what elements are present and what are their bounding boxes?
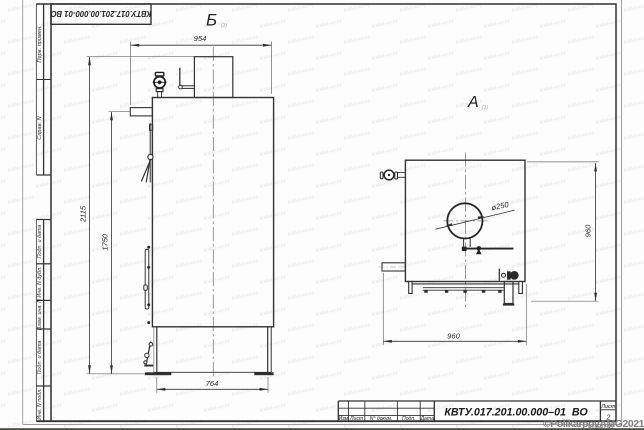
svg-text:kotlad-ws.kz: kotlad-ws.kz <box>119 194 147 206</box>
svg-text:kotlad-ws.kz: kotlad-ws.kz <box>231 418 259 430</box>
svg-text:kotlad-ws.kz: kotlad-ws.kz <box>455 418 483 430</box>
svg-text:kotlad-ws.kz: kotlad-ws.kz <box>455 354 483 366</box>
svg-text:kotlad-ws.kz: kotlad-ws.kz <box>483 114 511 126</box>
svg-text:kotlad-ws.kz: kotlad-ws.kz <box>539 50 567 62</box>
svg-text:kotlad-ws.kz: kotlad-ws.kz <box>7 418 35 430</box>
svg-text:kotlad-ws.kz: kotlad-ws.kz <box>427 82 455 94</box>
svg-text:kotlad-ws.kz: kotlad-ws.kz <box>63 258 91 270</box>
svg-text:kotlad-ws.kz: kotlad-ws.kz <box>595 82 623 94</box>
svg-text:kotlad-ws.kz: kotlad-ws.kz <box>595 50 623 62</box>
svg-text:kotlad-ws.kz: kotlad-ws.kz <box>63 418 91 430</box>
svg-text:kotlad-ws.kz: kotlad-ws.kz <box>147 242 175 254</box>
svg-text:kotlad-ws.kz: kotlad-ws.kz <box>623 34 644 46</box>
svg-text:kotlad-ws.kz: kotlad-ws.kz <box>539 114 567 126</box>
svg-text:N° докум.: N° докум. <box>370 416 393 422</box>
svg-text:kotlad-ws.kz: kotlad-ws.kz <box>343 98 371 110</box>
svg-text:kotlad-ws.kz: kotlad-ws.kz <box>0 146 7 158</box>
svg-text:kotlad-ws.kz: kotlad-ws.kz <box>7 226 35 238</box>
svg-text:kotlad-ws.kz: kotlad-ws.kz <box>231 226 259 238</box>
svg-text:kotlad-ws.kz: kotlad-ws.kz <box>7 354 35 366</box>
svg-text:kotlad-ws.kz: kotlad-ws.kz <box>371 274 399 286</box>
svg-text:kotlad-ws.kz: kotlad-ws.kz <box>315 370 343 382</box>
svg-text:kotlad-ws.kz: kotlad-ws.kz <box>147 370 175 382</box>
svg-text:Изм: Изм <box>339 416 349 422</box>
svg-text:kotlad-ws.kz: kotlad-ws.kz <box>511 354 539 366</box>
svg-text:Лист: Лист <box>349 416 363 422</box>
svg-text:kotlad-ws.kz: kotlad-ws.kz <box>0 82 7 94</box>
svg-text:kotlad-ws.kz: kotlad-ws.kz <box>623 290 644 302</box>
svg-text:kotlad-ws.kz: kotlad-ws.kz <box>539 82 567 94</box>
svg-text:kotlad-ws.kz: kotlad-ws.kz <box>343 226 371 238</box>
svg-text:kotlad-ws.kz: kotlad-ws.kz <box>7 130 35 142</box>
svg-text:kotlad-ws.kz: kotlad-ws.kz <box>119 386 147 398</box>
svg-text:kotlad-ws.kz: kotlad-ws.kz <box>455 258 483 270</box>
svg-text:kotlad-ws.kz: kotlad-ws.kz <box>91 114 119 126</box>
svg-text:kotlad-ws.kz: kotlad-ws.kz <box>63 290 91 302</box>
svg-text:kotlad-ws.kz: kotlad-ws.kz <box>259 50 287 62</box>
svg-text:kotlad-ws.kz: kotlad-ws.kz <box>287 354 315 366</box>
svg-text:kotlad-ws.kz: kotlad-ws.kz <box>0 210 7 222</box>
svg-text:kotlad-ws.kz: kotlad-ws.kz <box>427 18 455 30</box>
svg-text:kotlad-ws.kz: kotlad-ws.kz <box>623 162 644 174</box>
svg-text:kotlad-ws.kz: kotlad-ws.kz <box>595 370 623 382</box>
svg-text:kotlad-ws.kz: kotlad-ws.kz <box>175 226 203 238</box>
svg-text:kotlad-ws.kz: kotlad-ws.kz <box>231 66 259 78</box>
svg-text:kotlad-ws.kz: kotlad-ws.kz <box>371 50 399 62</box>
svg-text:kotlad-ws.kz: kotlad-ws.kz <box>175 130 203 142</box>
svg-text:kotlad-ws.kz: kotlad-ws.kz <box>231 98 259 110</box>
svg-text:kotlad-ws.kz: kotlad-ws.kz <box>91 274 119 286</box>
svg-text:kotlad-ws.kz: kotlad-ws.kz <box>539 370 567 382</box>
svg-text:kotlad-ws.kz: kotlad-ws.kz <box>399 162 427 174</box>
svg-text:kotlad-ws.kz: kotlad-ws.kz <box>287 162 315 174</box>
svg-text:kotlad-ws.kz: kotlad-ws.kz <box>623 98 644 110</box>
svg-text:kotlad-ws.kz: kotlad-ws.kz <box>371 370 399 382</box>
svg-text:kotlad-ws.kz: kotlad-ws.kz <box>595 18 623 30</box>
svg-text:kotlad-ws.kz: kotlad-ws.kz <box>259 82 287 94</box>
svg-text:kotlad-ws.kz: kotlad-ws.kz <box>539 306 567 318</box>
svg-text:kotlad-ws.kz: kotlad-ws.kz <box>399 386 427 398</box>
svg-text:kotlad-ws.kz: kotlad-ws.kz <box>371 210 399 222</box>
svg-text:kotlad-ws.kz: kotlad-ws.kz <box>231 34 259 46</box>
svg-text:kotlad-ws.kz: kotlad-ws.kz <box>119 322 147 334</box>
svg-text:kotlad-ws.kz: kotlad-ws.kz <box>371 82 399 94</box>
svg-text:kotlad-ws.kz: kotlad-ws.kz <box>455 386 483 398</box>
svg-text:kotlad-ws.kz: kotlad-ws.kz <box>203 306 231 318</box>
svg-text:kotlad-ws.kz: kotlad-ws.kz <box>0 178 7 190</box>
svg-text:Справ. N: Справ. N <box>37 115 43 139</box>
svg-text:1750: 1750 <box>100 233 109 251</box>
svg-text:kotlad-ws.kz: kotlad-ws.kz <box>0 50 7 62</box>
svg-text:kotlad-ws.kz: kotlad-ws.kz <box>539 18 567 30</box>
svg-text:Дата: Дата <box>419 416 434 422</box>
svg-text:kotlad-ws.kz: kotlad-ws.kz <box>371 178 399 190</box>
svg-text:kotlad-ws.kz: kotlad-ws.kz <box>343 354 371 366</box>
svg-text:764: 764 <box>206 379 219 388</box>
svg-text:kotlad-ws.kz: kotlad-ws.kz <box>483 338 511 350</box>
svg-text:kotlad-ws.kz: kotlad-ws.kz <box>343 258 371 270</box>
svg-text:kotlad-ws.kz: kotlad-ws.kz <box>539 338 567 350</box>
svg-text:kotlad-ws.kz: kotlad-ws.kz <box>567 162 595 174</box>
svg-text:kotlad-ws.kz: kotlad-ws.kz <box>259 370 287 382</box>
svg-text:kotlad-ws.kz: kotlad-ws.kz <box>427 146 455 158</box>
svg-text:kotlad-ws.kz: kotlad-ws.kz <box>427 306 455 318</box>
svg-text:kotlad-ws.kz: kotlad-ws.kz <box>511 66 539 78</box>
svg-text:kotlad-ws.kz: kotlad-ws.kz <box>0 18 7 30</box>
svg-text:Взам. инв. N: Взам. инв. N <box>37 299 43 331</box>
svg-text:kotlad-ws.kz: kotlad-ws.kz <box>539 242 567 254</box>
svg-text:kotlad-ws.kz: kotlad-ws.kz <box>315 50 343 62</box>
svg-text:kotlad-ws.kz: kotlad-ws.kz <box>0 274 7 286</box>
svg-text:kotlad-ws.kz: kotlad-ws.kz <box>63 322 91 334</box>
svg-text:kotlad-ws.kz: kotlad-ws.kz <box>203 242 231 254</box>
svg-text:kotlad-ws.kz: kotlad-ws.kz <box>567 194 595 206</box>
svg-text:kotlad-ws.kz: kotlad-ws.kz <box>623 194 644 206</box>
svg-text:kotlad-ws.kz: kotlad-ws.kz <box>399 194 427 206</box>
svg-text:kotlad-ws.kz: kotlad-ws.kz <box>7 322 35 334</box>
svg-text:kotlad-ws.kz: kotlad-ws.kz <box>567 354 595 366</box>
svg-text:kotlad-ws.kz: kotlad-ws.kz <box>371 146 399 158</box>
svg-text:kotlad-ws.kz: kotlad-ws.kz <box>147 50 175 62</box>
svg-text:kotlad-ws.kz: kotlad-ws.kz <box>203 402 231 414</box>
svg-text:kotlad-ws.kz: kotlad-ws.kz <box>623 66 644 78</box>
svg-text:kotlad-ws.kz: kotlad-ws.kz <box>399 290 427 302</box>
svg-text:kotlad-ws.kz: kotlad-ws.kz <box>231 322 259 334</box>
svg-text:954: 954 <box>194 34 207 43</box>
svg-text:kotlad-ws.kz: kotlad-ws.kz <box>595 114 623 126</box>
svg-text:kotlad-ws.kz: kotlad-ws.kz <box>567 34 595 46</box>
svg-text:kotlad-ws.kz: kotlad-ws.kz <box>315 82 343 94</box>
svg-text:kotlad-ws.kz: kotlad-ws.kz <box>371 18 399 30</box>
svg-text:kotlad-ws.kz: kotlad-ws.kz <box>455 290 483 302</box>
svg-text:kotlad-ws.kz: kotlad-ws.kz <box>231 194 259 206</box>
svg-text:kotlad-ws.kz: kotlad-ws.kz <box>287 258 315 270</box>
svg-text:kotlad-ws.kz: kotlad-ws.kz <box>91 402 119 414</box>
svg-text:kotlad-ws.kz: kotlad-ws.kz <box>63 98 91 110</box>
svg-text:kotlad-ws.kz: kotlad-ws.kz <box>623 386 644 398</box>
svg-text:kotlad-ws.kz: kotlad-ws.kz <box>63 66 91 78</box>
svg-text:kotlad-ws.kz: kotlad-ws.kz <box>427 178 455 190</box>
svg-text:kotlad-ws.kz: kotlad-ws.kz <box>455 66 483 78</box>
svg-text:kotlad-ws.kz: kotlad-ws.kz <box>287 130 315 142</box>
svg-text:kotlad-ws.kz: kotlad-ws.kz <box>231 290 259 302</box>
svg-text:kotlad-ws.kz: kotlad-ws.kz <box>91 210 119 222</box>
svg-text:kotlad-ws.kz: kotlad-ws.kz <box>175 418 203 430</box>
svg-text:kotlad-ws.kz: kotlad-ws.kz <box>567 258 595 270</box>
svg-text:kotlad-ws.kz: kotlad-ws.kz <box>259 402 287 414</box>
svg-text:kotlad-ws.kz: kotlad-ws.kz <box>175 258 203 270</box>
svg-text:kotlad-ws.kz: kotlad-ws.kz <box>399 258 427 270</box>
svg-text:kotlad-ws.kz: kotlad-ws.kz <box>371 306 399 318</box>
svg-text:kotlad-ws.kz: kotlad-ws.kz <box>315 114 343 126</box>
svg-text:kotlad-ws.kz: kotlad-ws.kz <box>63 34 91 46</box>
svg-text:А: А <box>467 94 479 111</box>
svg-text:kotlad-ws.kz: kotlad-ws.kz <box>147 402 175 414</box>
svg-text:kotlad-ws.kz: kotlad-ws.kz <box>119 66 147 78</box>
svg-text:kotlad-ws.kz: kotlad-ws.kz <box>343 34 371 46</box>
svg-text:kotlad-ws.kz: kotlad-ws.kz <box>399 226 427 238</box>
svg-text:kotlad-ws.kz: kotlad-ws.kz <box>0 370 7 382</box>
svg-text:kotlad-ws.kz: kotlad-ws.kz <box>287 290 315 302</box>
svg-text:kotlad-ws.kz: kotlad-ws.kz <box>35 210 63 222</box>
svg-text:Подп. и дата: Подп. и дата <box>37 341 43 375</box>
svg-text:kotlad-ws.kz: kotlad-ws.kz <box>315 18 343 30</box>
svg-text:kotlad-ws.kz: kotlad-ws.kz <box>483 50 511 62</box>
svg-text:kotlad-ws.kz: kotlad-ws.kz <box>0 338 7 350</box>
svg-text:kotlad-ws.kz: kotlad-ws.kz <box>483 370 511 382</box>
svg-text:kotlad-ws.kz: kotlad-ws.kz <box>119 130 147 142</box>
svg-text:kotlad-ws.kz: kotlad-ws.kz <box>343 290 371 302</box>
svg-text:kotlad-ws.kz: kotlad-ws.kz <box>91 82 119 94</box>
svg-text:kotlad-ws.kz: kotlad-ws.kz <box>231 354 259 366</box>
svg-text:kotlad-ws.kz: kotlad-ws.kz <box>511 322 539 334</box>
svg-text:kotlad-ws.kz: kotlad-ws.kz <box>623 130 644 142</box>
svg-text:kotlad-ws.kz: kotlad-ws.kz <box>315 210 343 222</box>
svg-text:Перв. примен.: Перв. примен. <box>37 25 43 62</box>
svg-text:kotlad-ws.kz: kotlad-ws.kz <box>595 210 623 222</box>
svg-text:kotlad-ws.kz: kotlad-ws.kz <box>175 322 203 334</box>
svg-text:kotlad-ws.kz: kotlad-ws.kz <box>287 34 315 46</box>
svg-text:kotlad-ws.kz: kotlad-ws.kz <box>455 130 483 142</box>
svg-text:kotlad-ws.kz: kotlad-ws.kz <box>231 162 259 174</box>
svg-text:960: 960 <box>583 224 592 237</box>
svg-text:kotlad-ws.kz: kotlad-ws.kz <box>343 130 371 142</box>
svg-text:kotlad-ws.kz: kotlad-ws.kz <box>0 306 7 318</box>
svg-text:kotlad-ws.kz: kotlad-ws.kz <box>595 306 623 318</box>
svg-text:kotlad-ws.kz: kotlad-ws.kz <box>63 162 91 174</box>
svg-text:kotlad-ws.kz: kotlad-ws.kz <box>259 18 287 30</box>
svg-text:kotlad-ws.kz: kotlad-ws.kz <box>539 178 567 190</box>
svg-text:kotlad-ws.kz: kotlad-ws.kz <box>7 162 35 174</box>
svg-text:kotlad-ws.kz: kotlad-ws.kz <box>287 194 315 206</box>
svg-text:Инв. N подл.: Инв. N подл. <box>37 388 43 420</box>
svg-text:kotlad-ws.kz: kotlad-ws.kz <box>399 354 427 366</box>
svg-text:kotlad-ws.kz: kotlad-ws.kz <box>203 146 231 158</box>
svg-text:kotlad-ws.kz: kotlad-ws.kz <box>231 386 259 398</box>
svg-text:Подп.: Подп. <box>402 416 416 422</box>
svg-text:kotlad-ws.kz: kotlad-ws.kz <box>623 226 644 238</box>
svg-text:ø250: ø250 <box>491 200 511 213</box>
svg-text:kotlad-ws.kz: kotlad-ws.kz <box>371 338 399 350</box>
svg-text:kotlad-ws.kz: kotlad-ws.kz <box>567 66 595 78</box>
svg-text:kotlad-ws.kz: kotlad-ws.kz <box>119 418 147 430</box>
svg-text:kotlad-ws.kz: kotlad-ws.kz <box>147 178 175 190</box>
svg-text:kotlad-ws.kz: kotlad-ws.kz <box>315 242 343 254</box>
svg-text:kotlad-ws.kz: kotlad-ws.kz <box>399 130 427 142</box>
svg-text:kotlad-ws.kz: kotlad-ws.kz <box>315 338 343 350</box>
svg-text:kotlad-ws.kz: kotlad-ws.kz <box>567 386 595 398</box>
svg-text:Инв. N дубл.: Инв. N дубл. <box>37 266 43 297</box>
svg-text:kotlad-ws.kz: kotlad-ws.kz <box>455 34 483 46</box>
svg-text:kotlad-ws.kz: kotlad-ws.kz <box>175 98 203 110</box>
svg-text:kotlad-ws.kz: kotlad-ws.kz <box>567 98 595 110</box>
svg-text:kotlad-ws.kz: kotlad-ws.kz <box>63 194 91 206</box>
svg-text:kotlad-ws.kz: kotlad-ws.kz <box>203 114 231 126</box>
svg-text:kotlad-ws.kz: kotlad-ws.kz <box>399 34 427 46</box>
svg-text:kotlad-ws.kz: kotlad-ws.kz <box>595 274 623 286</box>
svg-text:2115: 2115 <box>78 205 87 223</box>
svg-text:kotlad-ws.kz: kotlad-ws.kz <box>287 226 315 238</box>
svg-text:kotlad-ws.kz: kotlad-ws.kz <box>427 114 455 126</box>
svg-text:kotlad-ws.kz: kotlad-ws.kz <box>63 386 91 398</box>
svg-text:kotlad-ws.kz: kotlad-ws.kz <box>343 66 371 78</box>
svg-text:kotlad-ws.kz: kotlad-ws.kz <box>427 242 455 254</box>
svg-text:kotlad-ws.kz: kotlad-ws.kz <box>427 370 455 382</box>
svg-text:kotlad-ws.kz: kotlad-ws.kz <box>455 162 483 174</box>
svg-text:kotlad-ws.kz: kotlad-ws.kz <box>203 274 231 286</box>
svg-text:kotlad-ws.kz: kotlad-ws.kz <box>287 322 315 334</box>
svg-text:КВТУ.017.201.00.000-01 ВО: КВТУ.017.201.00.000-01 ВО <box>51 9 152 18</box>
svg-text:kotlad-ws.kz: kotlad-ws.kz <box>7 66 35 78</box>
svg-text:kotlad-ws.kz: kotlad-ws.kz <box>315 306 343 318</box>
svg-text:kotlad-ws.kz: kotlad-ws.kz <box>231 130 259 142</box>
svg-text:kotlad-ws.kz: kotlad-ws.kz <box>119 354 147 366</box>
svg-text:kotlad-ws.kz: kotlad-ws.kz <box>483 146 511 158</box>
svg-text:kotlad-ws.kz: kotlad-ws.kz <box>483 18 511 30</box>
svg-text:kotlad-ws.kz: kotlad-ws.kz <box>427 210 455 222</box>
svg-text:Б: Б <box>206 11 217 30</box>
svg-text:kotlad-ws.kz: kotlad-ws.kz <box>35 82 63 94</box>
svg-text:kotlad-ws.kz: kotlad-ws.kz <box>567 322 595 334</box>
svg-text:kotlad-ws.kz: kotlad-ws.kz <box>119 258 147 270</box>
svg-text:kotlad-ws.kz: kotlad-ws.kz <box>623 258 644 270</box>
svg-text:kotlad-ws.kz: kotlad-ws.kz <box>175 162 203 174</box>
svg-text:kotlad-ws.kz: kotlad-ws.kz <box>0 242 7 254</box>
svg-text:kotlad-ws.kz: kotlad-ws.kz <box>483 306 511 318</box>
svg-text:kotlad-ws.kz: kotlad-ws.kz <box>287 386 315 398</box>
svg-text:kotlad-ws.kz: kotlad-ws.kz <box>595 242 623 254</box>
svg-text:kotlad-ws.kz: kotlad-ws.kz <box>0 402 7 414</box>
svg-text:kotlad-ws.kz: kotlad-ws.kz <box>147 306 175 318</box>
svg-text:kotlad-ws.kz: kotlad-ws.kz <box>315 274 343 286</box>
svg-text:kotlad-ws.kz: kotlad-ws.kz <box>63 354 91 366</box>
svg-text:kotlad-ws.kz: kotlad-ws.kz <box>427 50 455 62</box>
svg-text:kotlad-ws.kz: kotlad-ws.kz <box>623 2 644 14</box>
svg-text:kotlad-ws.kz: kotlad-ws.kz <box>0 114 7 126</box>
svg-text:kotlad-ws.kz: kotlad-ws.kz <box>7 386 35 398</box>
svg-text:kotlad-ws.kz: kotlad-ws.kz <box>399 98 427 110</box>
svg-text:kotlad-ws.kz: kotlad-ws.kz <box>203 82 231 94</box>
svg-text:kotlad-ws.kz: kotlad-ws.kz <box>343 386 371 398</box>
svg-text:kotlad-ws.kz: kotlad-ws.kz <box>35 178 63 190</box>
svg-text:kotlad-ws.kz: kotlad-ws.kz <box>175 354 203 366</box>
svg-text:kotlad-ws.kz: kotlad-ws.kz <box>539 274 567 286</box>
svg-text:kotlad-ws.kz: kotlad-ws.kz <box>7 2 35 14</box>
svg-text:kotlad-ws.kz: kotlad-ws.kz <box>7 258 35 270</box>
svg-text:kotlad-ws.kz: kotlad-ws.kz <box>287 66 315 78</box>
svg-text:kotlad-ws.kz: kotlad-ws.kz <box>7 290 35 302</box>
svg-text:kotlad-ws.kz: kotlad-ws.kz <box>483 178 511 190</box>
svg-text:(1): (1) <box>482 105 488 111</box>
svg-text:kotlad-ws.kz: kotlad-ws.kz <box>91 306 119 318</box>
svg-text:kotlad-ws.kz: kotlad-ws.kz <box>119 34 147 46</box>
svg-text:kotlad-ws.kz: kotlad-ws.kz <box>7 98 35 110</box>
svg-text:Подп. и дата: Подп. и дата <box>37 225 43 259</box>
svg-text:kotlad-ws.kz: kotlad-ws.kz <box>511 130 539 142</box>
svg-text:kotlad-ws.kz: kotlad-ws.kz <box>511 386 539 398</box>
svg-text:kotlad-ws.kz: kotlad-ws.kz <box>91 370 119 382</box>
svg-text:kotlad-ws.kz: kotlad-ws.kz <box>147 210 175 222</box>
svg-text:kotlad-ws.kz: kotlad-ws.kz <box>343 162 371 174</box>
svg-text:kotlad-ws.kz: kotlad-ws.kz <box>175 290 203 302</box>
svg-text:kotlad-ws.kz: kotlad-ws.kz <box>203 178 231 190</box>
svg-text:kotlad-ws.kz: kotlad-ws.kz <box>203 210 231 222</box>
svg-text:kotlad-ws.kz: kotlad-ws.kz <box>287 418 315 430</box>
svg-text:kotlad-ws.kz: kotlad-ws.kz <box>203 338 231 350</box>
svg-text:kotlad-ws.kz: kotlad-ws.kz <box>35 146 63 158</box>
svg-text:kotlad-ws.kz: kotlad-ws.kz <box>7 34 35 46</box>
svg-text:kotlad-ws.kz: kotlad-ws.kz <box>175 386 203 398</box>
svg-text:kotlad-ws.kz: kotlad-ws.kz <box>623 354 644 366</box>
svg-text:kotlad-ws.kz: kotlad-ws.kz <box>91 50 119 62</box>
svg-text:kotlad-ws.kz: kotlad-ws.kz <box>371 242 399 254</box>
svg-text:КВТУ.017.201.00.000–01 ВО: КВТУ.017.201.00.000–01 ВО <box>444 406 588 418</box>
svg-text:kotlad-ws.kz: kotlad-ws.kz <box>511 98 539 110</box>
svg-text:kotlad-ws.kz: kotlad-ws.kz <box>315 178 343 190</box>
svg-text:kotlad-ws.kz: kotlad-ws.kz <box>119 290 147 302</box>
svg-text:kotlad-ws.kz: kotlad-ws.kz <box>539 146 567 158</box>
svg-text:kotlad-ws.kz: kotlad-ws.kz <box>7 194 35 206</box>
svg-text:kotlad-ws.kz: kotlad-ws.kz <box>567 130 595 142</box>
svg-text:kotlad-ws.kz: kotlad-ws.kz <box>119 162 147 174</box>
svg-text:kotlad-ws.kz: kotlad-ws.kz <box>371 114 399 126</box>
svg-text:kotlad-ws.kz: kotlad-ws.kz <box>175 194 203 206</box>
svg-text:kotlad-ws.kz: kotlad-ws.kz <box>399 322 427 334</box>
svg-text:Лист: Лист <box>600 404 616 410</box>
svg-text:kotlad-ws.kz: kotlad-ws.kz <box>511 34 539 46</box>
svg-text:960: 960 <box>447 331 460 340</box>
svg-text:kotlad-ws.kz: kotlad-ws.kz <box>595 178 623 190</box>
svg-text:kotlad-ws.kz: kotlad-ws.kz <box>399 66 427 78</box>
svg-text:kotlad-ws.kz: kotlad-ws.kz <box>203 50 231 62</box>
svg-text:kotlad-ws.kz: kotlad-ws.kz <box>595 338 623 350</box>
svg-text:kotlad-ws.kz: kotlad-ws.kz <box>91 146 119 158</box>
svg-text:(1): (1) <box>221 23 227 29</box>
svg-text:kotlad-ws.kz: kotlad-ws.kz <box>567 290 595 302</box>
svg-text:kotlad-ws.kz: kotlad-ws.kz <box>511 290 539 302</box>
svg-text:kotlad-ws.kz: kotlad-ws.kz <box>595 146 623 158</box>
svg-text:kotlad-ws.kz: kotlad-ws.kz <box>147 274 175 286</box>
svg-text:kotlad-ws.kz: kotlad-ws.kz <box>511 418 539 430</box>
svg-text:kotlad-ws.kz: kotlad-ws.kz <box>91 338 119 350</box>
svg-text:kotlad-ws.kz: kotlad-ws.kz <box>91 178 119 190</box>
svg-text:kotlad-ws.kz: kotlad-ws.kz <box>287 98 315 110</box>
svg-text:kotlad-ws.kz: kotlad-ws.kz <box>343 322 371 334</box>
svg-text:kotlad-ws.kz: kotlad-ws.kz <box>119 226 147 238</box>
svg-text:kotlad-ws.kz: kotlad-ws.kz <box>623 322 644 334</box>
svg-text:kotlad-ws.kz: kotlad-ws.kz <box>63 226 91 238</box>
svg-text:kotlad-ws.kz: kotlad-ws.kz <box>343 194 371 206</box>
svg-text:kotlad-ws.kz: kotlad-ws.kz <box>315 146 343 158</box>
svg-text:kotlad-ws.kz: kotlad-ws.kz <box>259 338 287 350</box>
svg-text:kotlad-ws.kz: kotlad-ws.kz <box>483 82 511 94</box>
svg-text:kotlad-ws.kz: kotlad-ws.kz <box>231 258 259 270</box>
svg-text:kotlad-ws.kz: kotlad-ws.kz <box>539 210 567 222</box>
svg-text:kotlad-ws.kz: kotlad-ws.kz <box>63 130 91 142</box>
